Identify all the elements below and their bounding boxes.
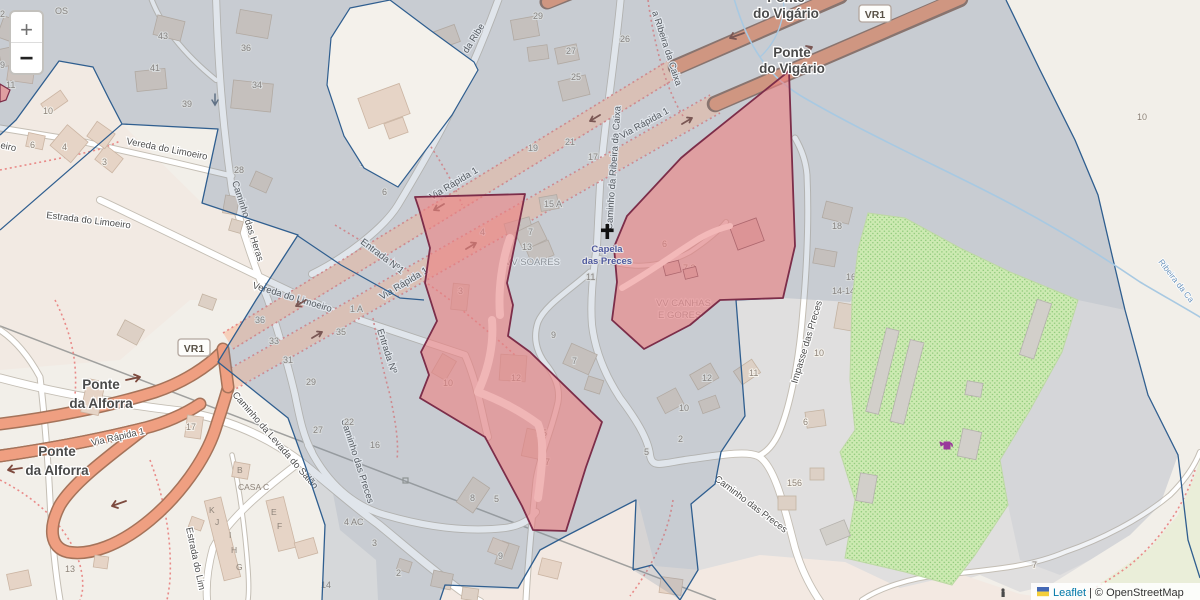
svg-text:6: 6 xyxy=(30,140,35,150)
svg-text:VR1: VR1 xyxy=(865,9,886,21)
svg-text:Ponte: Ponte xyxy=(767,0,805,5)
svg-text:B: B xyxy=(237,465,243,475)
svg-text:11: 11 xyxy=(749,368,758,378)
svg-text:Capela: Capela xyxy=(591,244,623,255)
svg-text:Ponte: Ponte xyxy=(773,45,811,60)
svg-text:| © OpenStreetMap: | © OpenStreetMap xyxy=(1089,587,1184,599)
svg-text:E: E xyxy=(271,507,277,517)
svg-text:da Alforra: da Alforra xyxy=(25,463,89,478)
svg-text:13: 13 xyxy=(65,564,75,574)
svg-text:do Vigário: do Vigário xyxy=(759,61,825,76)
svg-text:10: 10 xyxy=(814,348,824,358)
svg-text:17: 17 xyxy=(186,422,196,432)
svg-text:do Vigário: do Vigário xyxy=(753,6,819,21)
svg-text:Ponte: Ponte xyxy=(82,377,120,392)
svg-text:Leaflet: Leaflet xyxy=(1053,587,1086,599)
svg-text:G: G xyxy=(236,562,243,572)
svg-text:da Alforra: da Alforra xyxy=(69,396,133,411)
svg-text:−: − xyxy=(19,45,33,72)
svg-text:das Preces: das Preces xyxy=(582,256,632,267)
svg-text:Ponte: Ponte xyxy=(38,444,76,459)
svg-text:K: K xyxy=(209,505,215,515)
svg-text:H: H xyxy=(231,545,237,555)
svg-text:10: 10 xyxy=(43,106,53,116)
svg-text:+: + xyxy=(20,17,33,42)
svg-text:156: 156 xyxy=(787,478,802,488)
svg-text:6: 6 xyxy=(803,417,808,427)
svg-text:F: F xyxy=(277,521,282,531)
svg-text:4: 4 xyxy=(62,142,67,152)
svg-text:VR1: VR1 xyxy=(184,343,205,355)
svg-text:3: 3 xyxy=(102,157,107,167)
svg-text:10: 10 xyxy=(1137,112,1147,122)
svg-text:CASA C: CASA C xyxy=(238,482,269,492)
svg-text:I: I xyxy=(229,530,231,540)
svg-text:J: J xyxy=(215,517,219,527)
